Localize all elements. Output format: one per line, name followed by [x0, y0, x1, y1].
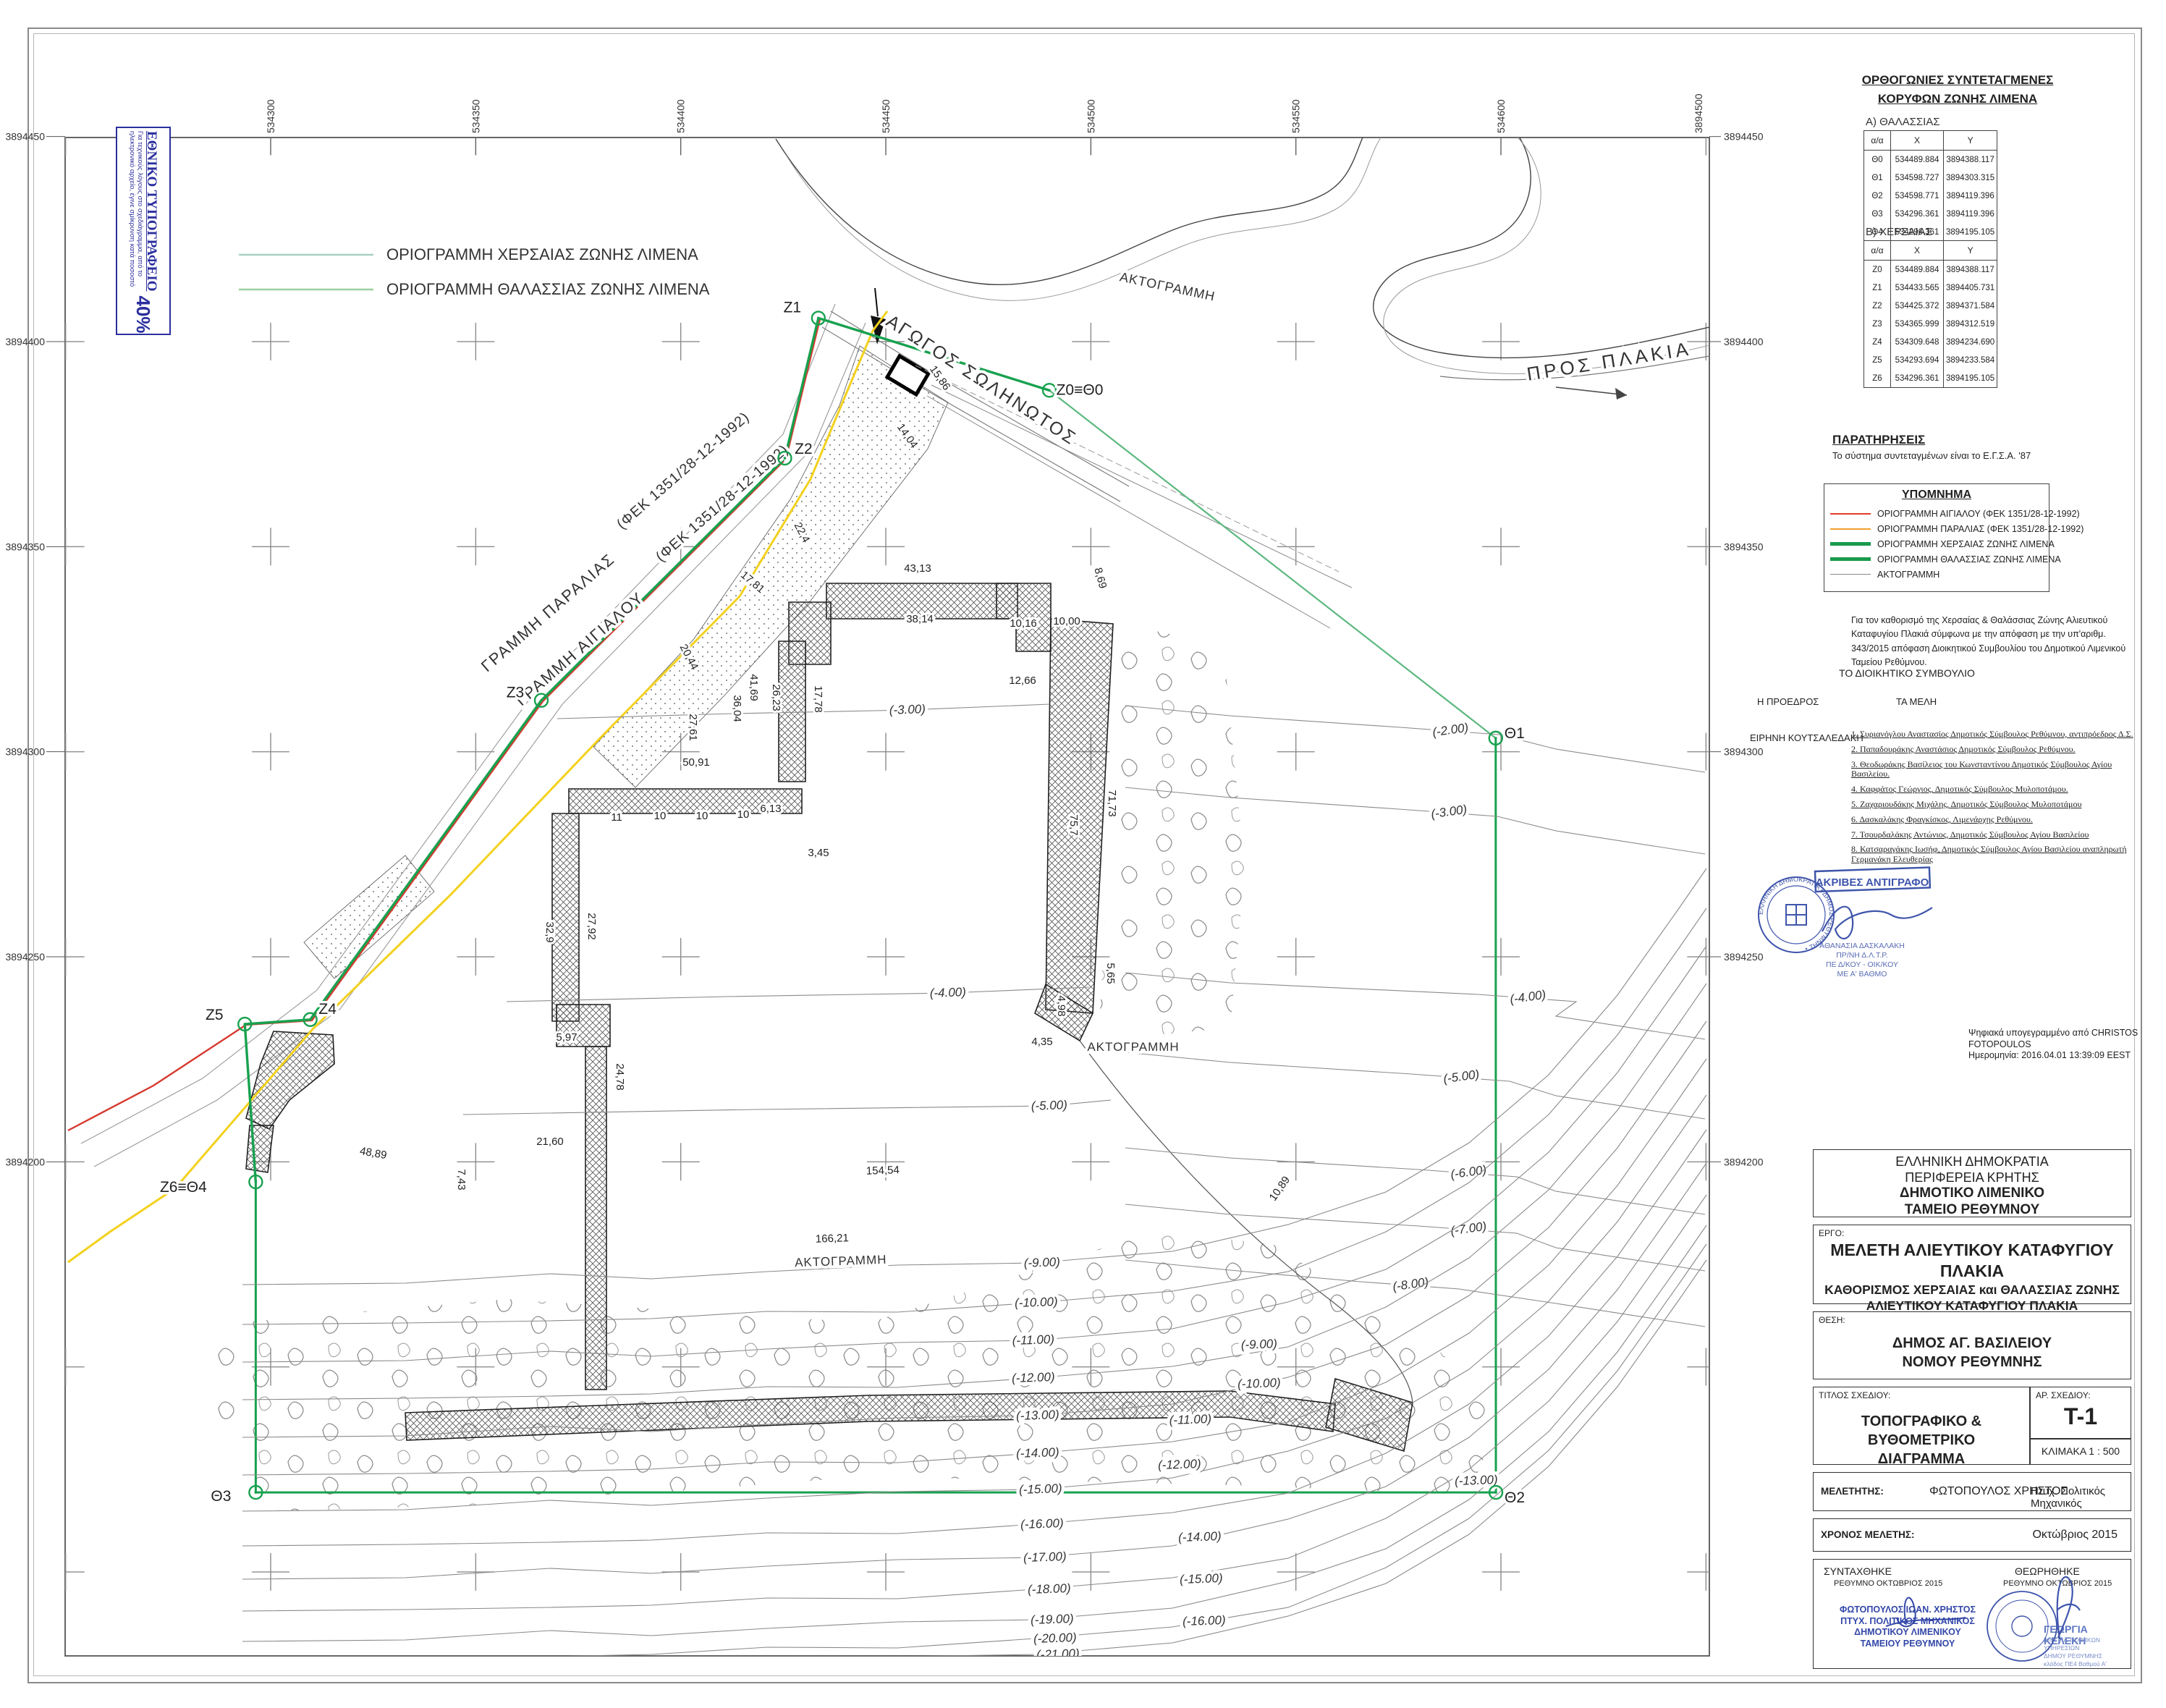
approver-line1: Δ/ΝΤΡΙΑ ΤΕΧΝΙΚΩΝ ΥΠΗΡΕΣΙΩΝ — [2044, 1636, 2131, 1652]
coords-cell: 534296.361 — [1891, 205, 1944, 223]
zone-point-center — [1494, 737, 1497, 740]
coords-cell: Z3 — [1864, 315, 1891, 333]
dimension-label: 10,16 — [1010, 617, 1037, 630]
dimension-label: 36,04 — [731, 695, 743, 722]
contour-label: (-14.00) — [1178, 1529, 1222, 1544]
dimension-label: 166,21 — [816, 1232, 849, 1246]
coords-cell: 534365.999 — [1891, 315, 1944, 333]
coords-cell: 3894119.396 — [1944, 205, 1997, 223]
zone-point-label-Z2: Z2 — [795, 441, 813, 457]
coords-cell: 3894233.584 — [1944, 351, 1997, 369]
members-list: 1. Συριανόγλου Αναστασίος Δημοτικός Σύμβ… — [1851, 730, 2135, 870]
designer-label: ΜΕΛΕΤΗΤΗΣ: — [1821, 1486, 1884, 1497]
legend-line-sample — [1830, 528, 1871, 530]
council-heading: ΤΟ ΔΙΟΙΚΗΤΙΚΟ ΣΥΜΒΟΥΛΙΟ — [1813, 667, 2001, 679]
dimension-label: 27,61 — [687, 714, 699, 741]
dimension-label: 26,23 — [770, 684, 782, 711]
titleblock-scale: ΚΛΙΜΑΚΑ 1 : 500 — [2030, 1439, 2131, 1465]
zone-point-center — [243, 1023, 246, 1026]
grid-x-label: 534300 — [265, 99, 276, 133]
dimension-label: 38,14 — [906, 613, 934, 625]
zone-point-center — [540, 699, 543, 702]
contour-label: (-9.00) — [1240, 1337, 1277, 1352]
contour-label: (-10.00) — [1015, 1295, 1058, 1310]
coords-title-line1: ΟΡΘΟΓΩΝΙΕΣ ΣΥΝΤΕΤΑΓΜΕΝΕΣ — [1842, 71, 2073, 90]
notes-block: ΠΑΡΑΤΗΡΗΣΕΙΣ Το σύστημα συντεταγμένων εί… — [1832, 433, 2071, 461]
dimension-label: 41,69 — [748, 674, 760, 701]
contour-label: (-15.00) — [1019, 1481, 1062, 1497]
coords-row: Θ2534598.7713894119.396 — [1864, 187, 1997, 205]
zone-point-center — [255, 1491, 258, 1494]
coords-cell: 3894234.690 — [1944, 333, 1997, 351]
grid-x-label: 534350 — [470, 99, 481, 133]
titlos-line1: ΤΟΠΟΓΡΑΦΙΚΟ & ΒΥΘΟΜΕΤΡΙΚΟ — [1814, 1412, 2029, 1450]
president-name: ΕΙΡΗΝΗ ΚΟΥΤΣΑΛΕΔΑΚΗ — [1750, 732, 1863, 743]
zone-point-label-Z0: Z0≡Θ0 — [1057, 381, 1104, 398]
contour-label: (-16.00) — [1183, 1613, 1226, 1628]
legend-item: ΟΡΙΟΓΡΑΜΜΗ ΘΑΛΑΣΣΙΑΣ ΖΩΝΗΣ ΛΙΜΕΝΑ — [1830, 551, 2043, 567]
notes-heading: ΠΑΡΑΤΗΡΗΣΕΙΣ — [1832, 433, 2071, 447]
digsig-line3: Ημερομηνία: 2016.04.01 13:39:09 EEST — [1968, 1050, 2149, 1062]
dimension-label: 5,65 — [1104, 963, 1117, 984]
certified-copy-stamp: ΕΛΛΗΝΙΚΗ ΔΗΜΟΚΡΑΤΙΑ • ΔΗΜΟΣ ΡΕΘΥΜΝΗΣ • Α… — [1743, 863, 1981, 1000]
council-member: 2. Παπαδουράκης Αναστάσιος Δημοτικός Σύμ… — [1851, 745, 2135, 755]
coords-row: Z0534489.8843894388.117 — [1864, 261, 1997, 279]
map-annotation: ΑΚΤΟΓΡΑΜΜΗ — [1087, 1040, 1179, 1054]
grid-y-label-right: 3894300 — [1724, 746, 1764, 758]
coords-cell: 3894312.519 — [1944, 315, 1997, 333]
national-printing-stamp: ΕΘΝΙΚΟ ΤΥΠΟΓΡΑΦΕΙΟ Για τεχνικούς λόγους … — [116, 127, 171, 335]
zone-point-center — [255, 1180, 258, 1183]
contour-label: (-13.00) — [1455, 1473, 1498, 1488]
approver-line2: ΔΗΜΟΥ ΡΕΘΥΜΝΗΣ — [2044, 1652, 2131, 1660]
coords-col-header: Y — [1944, 131, 1997, 151]
zone-point-center — [817, 317, 820, 320]
drawing-sheet: (-2.00)(-3.00)(-4.00)(-5.00)(-6.00)(-7.0… — [0, 0, 2166, 1708]
grid-x-label: 534600 — [1495, 99, 1507, 133]
date-label: ΧΡΟΝΟΣ ΜΕΛΕΤΗΣ: — [1821, 1529, 1914, 1540]
agency-line2: ΠΕΡΙΦΕΡΕΙΑ ΚΡΗΤΗΣ — [1814, 1170, 2131, 1186]
titleblock-thesi: ΘΕΣΗ: ΔΗΜΟΣ ΑΓ. ΒΑΣΙΛΕΙΟΥ ΝΟΜΟΥ ΡΕΘΥΜΝΗΣ — [1813, 1311, 2131, 1379]
dimension-label: 24,78 — [614, 1063, 626, 1091]
coords-cell: 534309.648 — [1891, 333, 1944, 351]
coords-cell: 3894405.731 — [1944, 279, 1997, 297]
coords-cell: Z5 — [1864, 351, 1891, 369]
zone-point-label-Z6: Z6≡Θ4 — [160, 1179, 207, 1196]
copy-stamp-box-text: ΑΚΡΙΒΕΣ ΑΝΤΙΓΡΑΦΟ — [1816, 876, 1929, 889]
titleblock-agency: ΕΛΛΗΝΙΚΗ ΔΗΜΟΚΡΑΤΙΑ ΠΕΡΙΦΕΡΕΙΑ ΚΡΗΤΗΣ ΔΗ… — [1813, 1149, 2131, 1217]
dimension-label: 75,7 — [1067, 814, 1080, 835]
dimension-label: 6,13 — [760, 803, 781, 815]
agency-line4: ΤΑΜΕΙΟ ΡΕΘΥΜΝΟΥ — [1814, 1202, 2131, 1219]
zone-point-label-T2: Θ2 — [1505, 1489, 1525, 1506]
dimension-label: 17,78 — [812, 685, 824, 713]
legend-item-label: ΑΚΤΟΓΡΑΜΜΗ — [1877, 570, 1939, 580]
approved-sub: ΡΕΘΥΜΝΟ ΟΚΤΩΒΡΙΟΣ 2015 — [2003, 1579, 2112, 1588]
titlos-label: ΤΙΤΛΟΣ ΣΧΕΔΙΟΥ: — [1819, 1390, 1890, 1400]
dimension-label: 4,35 — [1031, 1036, 1052, 1048]
grid-y-label-left: 3894450 — [5, 131, 45, 143]
dimension-label: 10 — [654, 810, 667, 822]
coords-row: Z1534433.5653894405.731 — [1864, 279, 1997, 297]
titleblock-designer: ΜΕΛΕΤΗΤΗΣ: ΦΩΤΟΠΟΥΛΟΣ ΧΡΗΣΤΟΣ Πτυχ. Πολι… — [1813, 1472, 2131, 1511]
zone-point-center — [1494, 1491, 1497, 1494]
contour-label: (-4.00) — [929, 985, 966, 1000]
grid-y-label-right: 3894350 — [1724, 541, 1764, 552]
thesi-label: ΘΕΣΗ: — [1819, 1315, 1845, 1325]
contour-label: (-12.00) — [1158, 1457, 1201, 1472]
coords-table-title: ΟΡΘΟΓΩΝΙΕΣ ΣΥΝΤΕΤΑΓΜΕΝΕΣ ΚΟΡΥΦΩΝ ΖΩΝΗΣ Λ… — [1842, 71, 2073, 108]
dimension-label: 71,73 — [1106, 790, 1118, 817]
coords-cell: 3894195.105 — [1944, 369, 1997, 388]
coords-cell: 3894371.584 — [1944, 297, 1997, 315]
author-line3: ΔΗΜΟΤΙΚΟΥ ΛΙΜΕΝΙΚΟΥ — [1835, 1627, 1980, 1639]
titlos-line2: ΔΙΑΓΡΑΜΜΑ — [1814, 1450, 2029, 1468]
titleblock-signatures: ΣΥΝΤΑΧΘΗΚΕ ΡΕΘΥΜΝΟ ΟΚΤΩΒΡΙΟΣ 2015 ΘΕΩΡΗΘ… — [1813, 1559, 2131, 1669]
contour-label: (-11.00) — [1169, 1412, 1211, 1427]
legend-item: ΑΚΤΟΓΡΑΜΜΗ — [1830, 567, 2043, 582]
copy-stamp-line: ΜΕ Α' ΒΑΘΜΟ — [1837, 970, 1887, 978]
contour-label: (-16.00) — [1020, 1516, 1064, 1531]
contour-label: (-9.00) — [1023, 1255, 1060, 1270]
coords-row: Θ0534489.8843894388.117 — [1864, 151, 1997, 169]
zone-point-center — [309, 1018, 312, 1021]
copy-stamp-line: ΑΘΑΝΑΣΙΑ ΔΑΣΚΑΛΑΚΗ — [1819, 942, 1905, 950]
agency-line3: ΔΗΜΟΤΙΚΟ ΛΙΜΕΝΙΚΟ — [1814, 1185, 2131, 1202]
ergo-label: ΕΡΓΟ: — [1819, 1228, 1844, 1238]
coords-col-header: α/α — [1864, 241, 1891, 261]
coords-title-line2: ΚΟΡΥΦΩΝ ΖΩΝΗΣ ΛΙΜΕΝΑ — [1842, 90, 2073, 109]
zone-point-label-T1: Θ1 — [1505, 725, 1525, 742]
council-member: 4. Καφφάτος Γεώργιος, Δημοτικός Σύμβουλο… — [1851, 785, 2135, 795]
titleblock-titlos: ΤΙΤΛΟΣ ΣΧΕΔΙΟΥ: ΤΟΠΟΓΡΑΦΙΚΟ & ΒΥΘΟΜΕΤΡΙΚ… — [1813, 1387, 2030, 1465]
scale-value: ΚΛΙΜΑΚΑ 1 : 500 — [2031, 1445, 2131, 1457]
dimension-label: 43,13 — [904, 562, 931, 575]
drafted-label: ΣΥΝΤΑΧΘΗΚΕ — [1824, 1565, 1892, 1577]
dimension-label: 32,9 — [543, 921, 556, 942]
grid-x-label: 534550 — [1290, 99, 1302, 133]
legend-item: ΟΡΙΟΓΡΑΜΜΗ ΠΑΡΑΛΙΑΣ (ΦΕΚ 1351/28-12-1992… — [1830, 521, 2043, 536]
notes-body: Το σύστημα συντεταγμένων είναι το Ε.Γ.Σ.… — [1832, 450, 2071, 461]
coords-cell: 534489.884 — [1891, 151, 1944, 169]
council-member: 8. Κατσαραγάκης Ιωσήφ, Δημοτικός Σύμβουλ… — [1851, 845, 2135, 865]
titleblock-date: ΧΡΟΝΟΣ ΜΕΛΕΤΗΣ: Οκτώβριος 2015 — [1813, 1518, 2131, 1552]
coords-cell: 534425.372 — [1891, 297, 1944, 315]
dimension-label: 5,97 — [556, 1031, 577, 1044]
dimension-label: 10 — [737, 808, 750, 821]
zone-point-center — [784, 457, 787, 460]
grid-x-label: 534400 — [675, 99, 687, 133]
sheetno-value: Τ-1 — [2031, 1403, 2131, 1430]
council-member: 5. Ζαχαριουδάκης Μιχάλης, Δημοτικός Σύμβ… — [1851, 800, 2135, 810]
contour-label: (-5.00) — [1031, 1098, 1067, 1113]
titleblock-sheetno: ΑΡ. ΣΧΕΔΙΟΥ: Τ-1 — [2030, 1387, 2131, 1439]
zone-point-label-Z4: Z4 — [318, 1001, 337, 1018]
thesi-line1: ΔΗΜΟΣ ΑΓ. ΒΑΣΙΛΕΙΟΥ — [1814, 1334, 2131, 1353]
zone-point-label-Z5: Z5 — [206, 1007, 224, 1023]
contour-label: (-19.00) — [1031, 1612, 1074, 1627]
dimension-label: 10,00 — [1053, 615, 1080, 627]
approver-details: Δ/ΝΤΡΙΑ ΤΕΧΝΙΚΩΝ ΥΠΗΡΕΣΙΩΝ ΔΗΜΟΥ ΡΕΘΥΜΝΗ… — [2044, 1636, 2131, 1668]
author-block: ΦΩΤΟΠΟΥΛΟΣ ΙΩΑΝ. ΧΡΗΣΤΟΣ ΠΤΥΧ. ΠΟΛΙΤΙΚΟΣ… — [1835, 1605, 1980, 1650]
coords-cell: 534598.771 — [1891, 187, 1944, 205]
contour-label: (-18.00) — [1028, 1581, 1071, 1597]
coords-col-header: X — [1891, 241, 1944, 261]
council-member: 7. Τσουρδαλάκης Αντώνιος, Δημοτικός Σύμβ… — [1851, 830, 2135, 840]
legend-item-label: ΟΡΙΟΓΡΑΜΜΗ ΘΑΛΑΣΣΙΑΣ ΖΩΝΗΣ ΛΙΜΕΝΑ — [1877, 554, 2061, 565]
coords-cell: Z6 — [1864, 369, 1891, 388]
grid-x-label: 534500 — [1085, 99, 1096, 133]
grid-y-label-left: 3894350 — [5, 541, 45, 552]
coords-cell: 534598.727 — [1891, 169, 1944, 187]
coords-cell: Θ0 — [1864, 151, 1891, 169]
coords-cell: 534433.565 — [1891, 279, 1944, 297]
author-line4: ΤΑΜΕΙΟΥ ΡΕΘΥΜΝΟΥ — [1835, 1639, 1980, 1650]
digsig-line2: FOTOPOULOS — [1968, 1039, 2149, 1051]
ergo-line2: ΠΛΑΚΙΑ — [1814, 1261, 2131, 1282]
dimension-label: 27,92 — [585, 913, 598, 940]
contour-label: (-10.00) — [1238, 1376, 1281, 1391]
agency-line1: ΕΛΛΗΝΙΚΗ ΔΗΜΟΚΡΑΤΙΑ — [1814, 1154, 2131, 1170]
legend-line-sample — [1830, 574, 1871, 575]
legend-title: ΥΠΟΜΝΗΜΑ — [1830, 489, 2043, 502]
printing-stamp-body: Για τεχνικούς λόγους στο σχεδιάγραμμα, α… — [127, 131, 143, 292]
coords-cell: Z4 — [1864, 333, 1891, 351]
digital-signature: Ψηφιακά υπογεγραμμένο από CHRISTOS FOTOP… — [1968, 1028, 2149, 1062]
coords-cell: Θ2 — [1864, 187, 1891, 205]
coords-row: Z6534296.3613894195.105 — [1864, 369, 1997, 388]
rubble-field-east — [1100, 624, 1245, 1035]
president-label: Η ΠΡΟΕΔΡΟΣ — [1757, 696, 1819, 707]
council-member: 1. Συριανόγλου Αναστασίος Δημοτικός Σύμβ… — [1851, 730, 2135, 740]
coords-cell: 3894303.315 — [1944, 169, 1997, 187]
council-member: 6. Δασκαλάκης Φραγκίσκος, Λιμενάρχης Ρεθ… — [1851, 815, 2135, 825]
sheetno-label: ΑΡ. ΣΧΕΔΙΟΥ: — [2036, 1390, 2091, 1400]
legend-line-sample — [1830, 557, 1871, 561]
dimension-label: 21,60 — [536, 1136, 564, 1148]
coords-cell: 534293.694 — [1891, 351, 1944, 369]
legend-item-label: ΟΡΙΟΓΡΑΜΜΗ ΠΑΡΑΛΙΑΣ (ΦΕΚ 1351/28-12-1992… — [1877, 524, 2083, 534]
date-value: Οκτώβριος 2015 — [2032, 1529, 2118, 1542]
sea-table: α/αXYΘ0534489.8843894388.117Θ1534598.727… — [1863, 130, 1997, 242]
contour-label: (-20.00) — [1033, 1631, 1077, 1646]
dimension-label: 10 — [696, 810, 708, 822]
land-table-caption: Β) ΧΕΡΣΑΙΑΣ — [1866, 226, 1932, 238]
contour-label: (-3.00) — [889, 702, 926, 717]
zone-point-label-T3: Θ3 — [211, 1488, 231, 1505]
grid-corner-label: 3894500 — [1693, 93, 1704, 133]
coords-cell: 534489.884 — [1891, 261, 1944, 279]
members-label: ΤΑ ΜΕΛΗ — [1896, 696, 1937, 707]
dimension-label: 4,98 — [1055, 995, 1067, 1016]
coords-cell: Θ1 — [1864, 169, 1891, 187]
dimension-label: 154,54 — [866, 1164, 900, 1178]
copy-stamp-signature — [1822, 907, 1932, 939]
grid-y-label-right: 3894200 — [1724, 1156, 1764, 1167]
copy-stamp-line: ΠΕ Δ/ΚΟΥ - ΟΙΚ/ΚΟΥ — [1826, 960, 1898, 969]
grid-y-label-left: 3894300 — [5, 746, 45, 758]
dimension-label: 7,43 — [455, 1169, 468, 1190]
contour-label: (-17.00) — [1023, 1550, 1067, 1565]
digsig-line1: Ψηφιακά υπογεγραμμένο από CHRISTOS — [1968, 1028, 2149, 1039]
author-line1: ΦΩΤΟΠΟΥΛΟΣ ΙΩΑΝ. ΧΡΗΣΤΟΣ — [1835, 1605, 1980, 1616]
coords-cell: 3894388.117 — [1944, 261, 1997, 279]
coords-cell: 3894388.117 — [1944, 151, 1997, 169]
designer-title: Πτυχ. Πολιτικός Μηχανικός — [2031, 1485, 2131, 1510]
ergo-line3: ΚΑΘΟΡΙΣΜΟΣ ΧΕΡΣΑΙΑΣ και ΘΑΛΑΣΣΙΑΣ ΖΩΝΗΣ — [1814, 1282, 2131, 1298]
zone-point-label-Z3: Z3 — [507, 685, 525, 701]
copy-stamp-line: ΠΡ/ΝΗ Δ.Λ.Τ.Ρ. — [1836, 951, 1888, 960]
grid-x-label: 534450 — [880, 99, 892, 133]
grid-y-label-right: 3894400 — [1724, 336, 1764, 347]
land-table: α/αXYZ0534489.8843894388.117Z1534433.565… — [1863, 240, 1997, 388]
approver-line3: κλάδος ΠΕ4 Βαθμού Α' — [2044, 1660, 2131, 1668]
contour-label: (-15.00) — [1180, 1571, 1223, 1586]
coords-row: Θ3534296.3613894119.396 — [1864, 205, 1997, 223]
legend-item-label: ΟΡΙΟΓΡΑΜΜΗ ΧΕΡΣΑΙΑΣ ΖΩΝΗΣ ΛΙΜΕΝΑ — [1877, 539, 2055, 549]
dimension-label: 11 — [611, 811, 622, 824]
coords-cell: 3894119.396 — [1944, 187, 1997, 205]
coords-row: Z4534309.6483894234.690 — [1864, 333, 1997, 351]
decision-note: Για τον καθορισμό της Χερσαίας & Θαλάσσι… — [1851, 614, 2135, 670]
coords-cell: Z2 — [1864, 297, 1891, 315]
coords-cell: Z1 — [1864, 279, 1891, 297]
titleblock-ergo: ΕΡΓΟ: ΜΕΛΕΤΗ ΑΛΙΕΥΤΙΚΟΥ ΚΑΤΑΦΥΓΙΟΥ ΠΛΑΚΙ… — [1813, 1225, 2131, 1304]
legend-line-sample — [1830, 513, 1871, 515]
coords-col-header: α/α — [1864, 131, 1891, 151]
coords-row: Z3534365.9993894312.519 — [1864, 315, 1997, 333]
sea-table-caption: Α) ΘΑΛΑΣΣΙΑΣ — [1866, 116, 1940, 128]
grid-y-label-left: 3894400 — [5, 336, 45, 347]
legend-item: ΟΡΙΟΓΡΑΜΜΗ ΧΕΡΣΑΙΑΣ ΖΩΝΗΣ ΛΙΜΕΝΑ — [1830, 536, 2043, 551]
legend-box: ΥΠΟΜΝΗΜΑ ΟΡΙΟΓΡΑΜΜΗ ΑΙΓΙΑΛΟΥ (ΦΕΚ 1351/2… — [1824, 483, 2049, 592]
coords-row: Z2534425.3723894371.584 — [1864, 297, 1997, 315]
map-legend-label: ΟΡΙΟΓΡΑΜΜΗ ΧΕΡΣΑΙΑΣ ΖΩΝΗΣ ΛΙΜΕΝΑ — [386, 245, 698, 263]
coords-row: Z5534293.6943894233.584 — [1864, 351, 1997, 369]
zone-point-center — [1048, 389, 1051, 392]
grid-y-label-left: 3894200 — [5, 1156, 45, 1167]
coords-col-header: X — [1891, 131, 1944, 151]
coords-cell: 3894195.105 — [1944, 223, 1997, 242]
coords-col-header: Y — [1944, 241, 1997, 261]
zone-point-label-Z1: Z1 — [784, 300, 802, 316]
contour-label: (-11.00) — [1012, 1332, 1054, 1348]
coords-cell: Θ3 — [1864, 205, 1891, 223]
contour-label: (-12.00) — [1012, 1370, 1055, 1385]
coords-cell: 534296.361 — [1891, 369, 1944, 388]
printing-stamp-title: ΕΘΝΙΚΟ ΤΥΠΟΓΡΑΦΕΙΟ — [143, 131, 159, 292]
dimension-label: 3,45 — [808, 847, 829, 859]
coords-row: Θ1534598.7273894303.315 — [1864, 169, 1997, 187]
copy-stamp-name-lines: ΑΘΑΝΑΣΙΑ ΔΑΣΚΑΛΑΚΗΠΡ/ΝΗ Δ.Λ.Τ.Ρ.ΠΕ Δ/ΚΟΥ… — [1819, 942, 1905, 978]
printing-stamp-percent: 40% — [132, 296, 155, 334]
grid-y-label-right: 3894450 — [1724, 131, 1764, 143]
drafted-sub: ΡΕΘΥΜΝΟ ΟΚΤΩΒΡΙΟΣ 2015 — [1834, 1579, 1942, 1588]
legend-line-sample — [1830, 542, 1871, 546]
dimension-label: 12,66 — [1009, 675, 1036, 687]
legend-item: ΟΡΙΟΓΡΑΜΜΗ ΑΙΓΙΑΛΟΥ (ΦΕΚ 1351/28-12-1992… — [1830, 506, 2043, 521]
contour-label: (-21.00) — [1036, 1646, 1080, 1662]
council-member: 3. Θεοδωράκης Βασίλειος του Κωνσταντίνου… — [1851, 760, 2135, 780]
thesi-line2: ΝΟΜΟΥ ΡΕΘΥΜΝΗΣ — [1814, 1353, 2131, 1371]
contour-label: (-14.00) — [1016, 1445, 1059, 1460]
grid-y-label-left: 3894250 — [5, 951, 45, 963]
contour-label: (-13.00) — [1016, 1408, 1059, 1423]
coords-cell: Z0 — [1864, 261, 1891, 279]
dimension-label: 50,91 — [682, 756, 710, 769]
map-legend-label: ΟΡΙΟΓΡΑΜΜΗ ΘΑΛΑΣΣΙΑΣ ΖΩΝΗΣ ΛΙΜΕΝΑ — [386, 280, 710, 298]
approved-label: ΘΕΩΡΗΘΗΚΕ — [2015, 1565, 2080, 1577]
legend-item-label: ΟΡΙΟΓΡΑΜΜΗ ΑΙΓΙΑΛΟΥ (ΦΕΚ 1351/28-12-1992… — [1877, 509, 2080, 519]
author-line2: ΠΤΥΧ. ΠΟΛΙΤΙΚΟΣ ΜΗΧΑΝΙΚΟΣ — [1835, 1616, 1980, 1628]
ergo-line1: ΜΕΛΕΤΗ ΑΛΙΕΥΤΙΚΟΥ ΚΑΤΑΦΥΓΙΟΥ — [1814, 1240, 2131, 1261]
